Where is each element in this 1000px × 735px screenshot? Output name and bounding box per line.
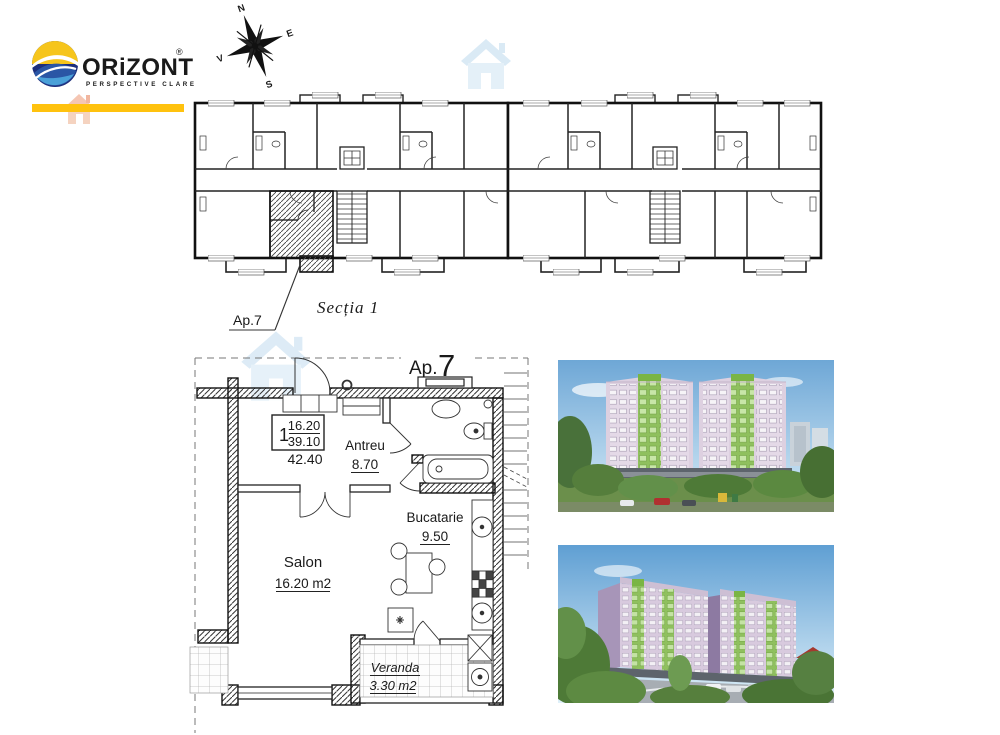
bucatarie-area: 9.50 (422, 529, 448, 544)
plant-box-icon (388, 608, 413, 632)
car-dark (682, 500, 696, 506)
car-red (654, 498, 670, 505)
kitchen-counter (472, 500, 493, 630)
building-rendering-perspective (558, 545, 834, 703)
neighbor-veranda-floor (190, 647, 228, 693)
building-floor-plan-overview: Ap.7 Secția 1 (186, 92, 830, 340)
total-area: 42.40 (287, 451, 322, 467)
playground-equipment (718, 493, 727, 502)
stairs (504, 373, 527, 555)
registered-mark: ® (176, 47, 183, 57)
ap7-callout-label: Ap.7 (233, 312, 262, 328)
detail-title-prefix: Ap. (409, 358, 438, 379)
compass-rose-icon: N E S V (203, 0, 307, 94)
house-watermark-blue-icon (455, 35, 517, 93)
brand-name: ORiZONT (82, 54, 194, 81)
stove-icon (472, 571, 493, 597)
wardrobe-icon (343, 398, 380, 415)
stair-core-section1 (337, 147, 367, 243)
bucatarie-label: Bucatarie (406, 510, 463, 525)
living-area: 16.20 (288, 418, 321, 433)
car-white (726, 686, 741, 692)
entry-door (295, 358, 352, 393)
veranda-area: 3.30 m2 (370, 678, 418, 693)
kitchen-table-icon (391, 543, 445, 595)
section-label: Secția 1 (317, 298, 379, 317)
usable-area: 39.10 (288, 434, 321, 449)
washer-icon (468, 663, 492, 691)
tower-1 (606, 374, 693, 472)
compass-e-label: E (285, 28, 295, 41)
salon-label: Salon (284, 554, 322, 571)
area-table: 1 16.20 39.10 42.40 (272, 415, 324, 467)
toilet-icon (464, 423, 492, 439)
brand-tagline: PERSPECTIVE CLARE (86, 81, 197, 88)
antreu-label: Antreu (345, 438, 385, 453)
antreu-area: 8.70 (352, 457, 378, 472)
threshold-x-box (468, 635, 492, 661)
hall-shelf-icon (283, 395, 337, 412)
orizont-globe-icon (32, 41, 78, 87)
compass-n-label: N (236, 2, 246, 15)
compass-w-label: V (216, 53, 226, 66)
veranda-label: Veranda (371, 660, 420, 675)
logo-underline-bar (32, 104, 184, 112)
upper-balcony (418, 377, 472, 388)
tower-2 (699, 374, 786, 472)
apartment-detail-plan: Ap. 7 (188, 345, 536, 735)
building-rendering-front (558, 360, 834, 512)
bath-sink-icon (432, 400, 460, 418)
car-white (620, 500, 634, 506)
flyer-page: ORiZONT ® PERSPECTIVE CLARE N E S V (0, 0, 1000, 735)
stair-core-section2 (650, 147, 680, 243)
bathtub-icon (423, 455, 493, 483)
compass-s-label: S (264, 79, 274, 92)
salon-area: 16.20 m2 (275, 576, 331, 591)
